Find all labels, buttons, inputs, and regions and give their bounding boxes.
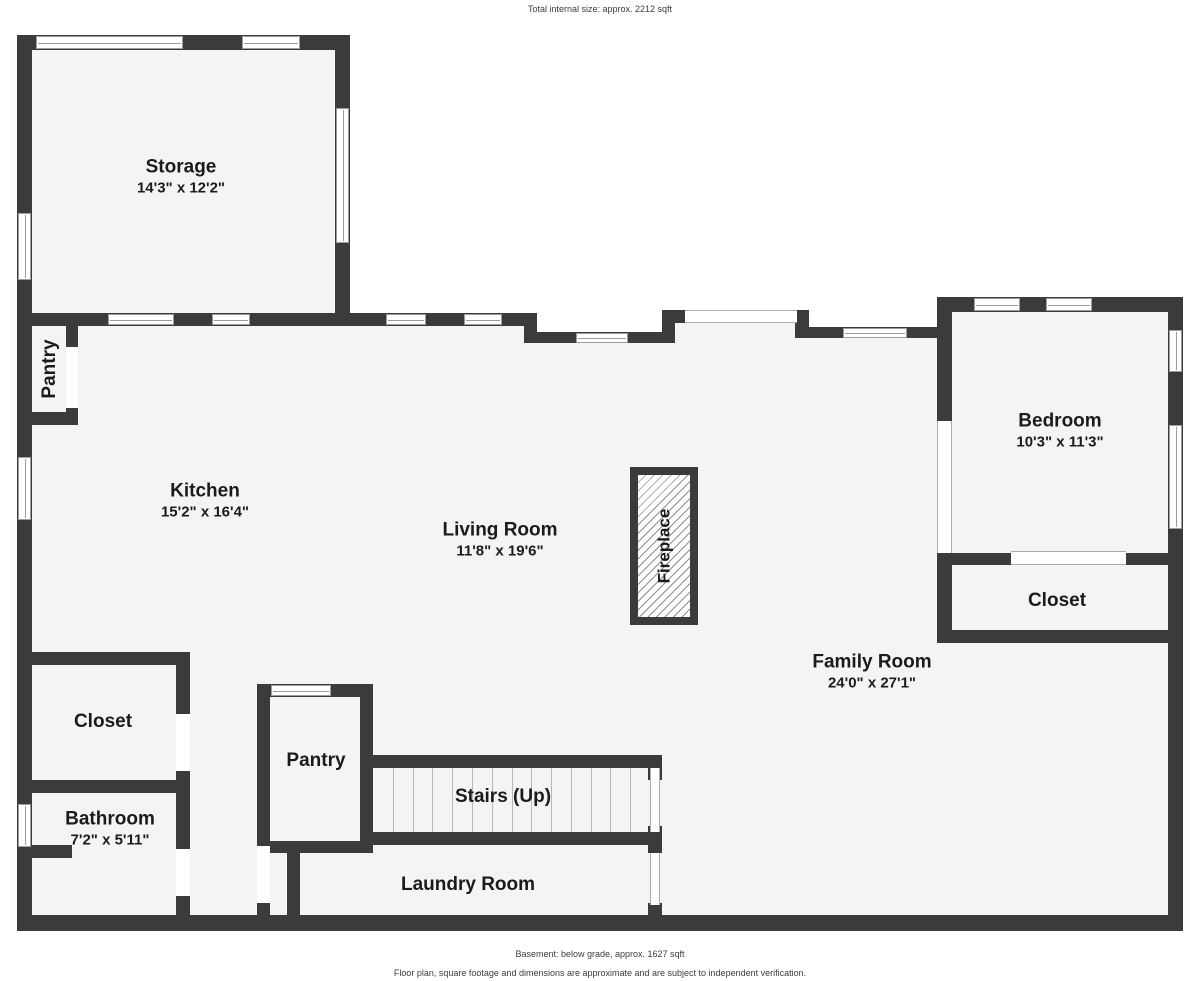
wall xyxy=(373,832,655,845)
window xyxy=(974,298,1020,311)
room-name: Storage xyxy=(137,157,225,179)
wall xyxy=(257,684,270,846)
open-edge xyxy=(937,421,952,553)
room-dimensions: 14'3" x 12'2" xyxy=(137,179,225,198)
door-opening xyxy=(257,846,270,903)
wall xyxy=(360,684,373,852)
fireplace: Fireplace xyxy=(630,467,698,625)
fireplace-label: Fireplace xyxy=(654,509,674,584)
open-edge xyxy=(650,768,660,832)
room-label-closet-hall: Closet xyxy=(74,711,132,733)
floor-plan: FireplaceStorage14'3" x 12'2"PantryKitch… xyxy=(0,0,1200,981)
disclaimer-note: Floor plan, square footage and dimension… xyxy=(0,968,1200,978)
stair-tread xyxy=(413,768,414,832)
room-dimensions: 24'0" x 27'1" xyxy=(812,674,931,693)
room-label-closet-bedroom: Closet xyxy=(1028,590,1086,612)
room-name: Pantry xyxy=(39,339,61,398)
room-name: Closet xyxy=(1028,590,1086,612)
open-edge xyxy=(650,853,660,905)
window xyxy=(336,108,349,243)
wall xyxy=(662,310,687,323)
window xyxy=(1169,330,1182,372)
total-size-note: Total internal size: approx. 2212 sqft xyxy=(0,4,1200,14)
room-label-living-room: Living Room11'8" x 19'6" xyxy=(442,520,557,561)
door-opening xyxy=(176,849,190,896)
window xyxy=(212,314,250,325)
room-label-laundry-room: Laundry Room xyxy=(401,874,535,896)
door-opening xyxy=(66,347,78,408)
wall xyxy=(937,297,952,423)
window xyxy=(18,213,31,280)
room-label-family-room: Family Room24'0" x 27'1" xyxy=(812,652,931,693)
wall xyxy=(66,325,78,347)
wall xyxy=(373,755,660,768)
window xyxy=(386,314,426,325)
stair-tread xyxy=(610,768,611,832)
window xyxy=(18,457,31,520)
window xyxy=(576,333,628,343)
room-name: Pantry xyxy=(286,750,345,772)
room-label-bathroom: Bathroom7'2" x 5'11" xyxy=(65,809,155,850)
window xyxy=(843,328,907,338)
room-label-bedroom: Bedroom10'3" x 11'3" xyxy=(1016,411,1103,452)
window xyxy=(271,685,331,696)
room-name: Kitchen xyxy=(161,481,249,503)
room-label-storage: Storage14'3" x 12'2" xyxy=(137,157,225,198)
window xyxy=(464,314,502,325)
window xyxy=(36,36,183,49)
door-opening xyxy=(176,714,190,771)
room-dimensions: 11'8" x 19'6" xyxy=(442,542,557,561)
window xyxy=(1046,298,1092,311)
wall xyxy=(1168,297,1183,930)
wall xyxy=(648,903,662,921)
window xyxy=(18,804,31,847)
room-name: Laundry Room xyxy=(401,874,535,896)
floor-area xyxy=(797,332,937,920)
wall xyxy=(17,652,187,665)
room-dimensions: 15'2" x 16'4" xyxy=(161,503,249,522)
room-name: Living Room xyxy=(442,520,557,542)
floor-area xyxy=(937,305,1177,920)
room-label-pantry-lower: Pantry xyxy=(286,750,345,772)
basement-size-note: Basement: below grade, approx. 1627 sqft xyxy=(0,949,1200,959)
room-dimensions: 10'3" x 11'3" xyxy=(1016,433,1103,452)
wall xyxy=(287,846,300,922)
room-name: Bedroom xyxy=(1016,411,1103,433)
stair-tread xyxy=(630,768,631,832)
window xyxy=(108,314,174,325)
stair-tread xyxy=(393,768,394,832)
room-label-stairs: Stairs (Up) xyxy=(455,786,551,808)
room-label-kitchen: Kitchen15'2" x 16'4" xyxy=(161,481,249,522)
wall xyxy=(257,841,373,853)
room-name: Closet xyxy=(74,711,132,733)
room-name: Stairs (Up) xyxy=(455,786,551,808)
wall xyxy=(937,630,1183,643)
wall xyxy=(1124,553,1183,565)
window xyxy=(242,36,300,49)
wall xyxy=(257,903,270,921)
wall xyxy=(17,915,1183,931)
wall xyxy=(176,652,190,714)
floor-plan-page: Total internal size: approx. 2212 sqft F… xyxy=(0,0,1200,981)
stair-tread xyxy=(571,768,572,832)
wall xyxy=(937,553,1013,565)
wall xyxy=(17,780,190,793)
stair-tread xyxy=(452,768,453,832)
open-edge xyxy=(685,310,797,323)
wall xyxy=(176,896,190,921)
open-edge xyxy=(1011,551,1126,565)
room-dimensions: 7'2" x 5'11" xyxy=(65,831,155,850)
room-label-pantry-upper: Pantry xyxy=(39,339,61,398)
stair-tread xyxy=(591,768,592,832)
wall xyxy=(17,412,78,425)
stair-tread xyxy=(432,768,433,832)
stair-tread xyxy=(551,768,552,832)
wall xyxy=(17,313,537,326)
room-name: Bathroom xyxy=(65,809,155,831)
room-name: Family Room xyxy=(812,652,931,674)
window xyxy=(1169,425,1182,529)
